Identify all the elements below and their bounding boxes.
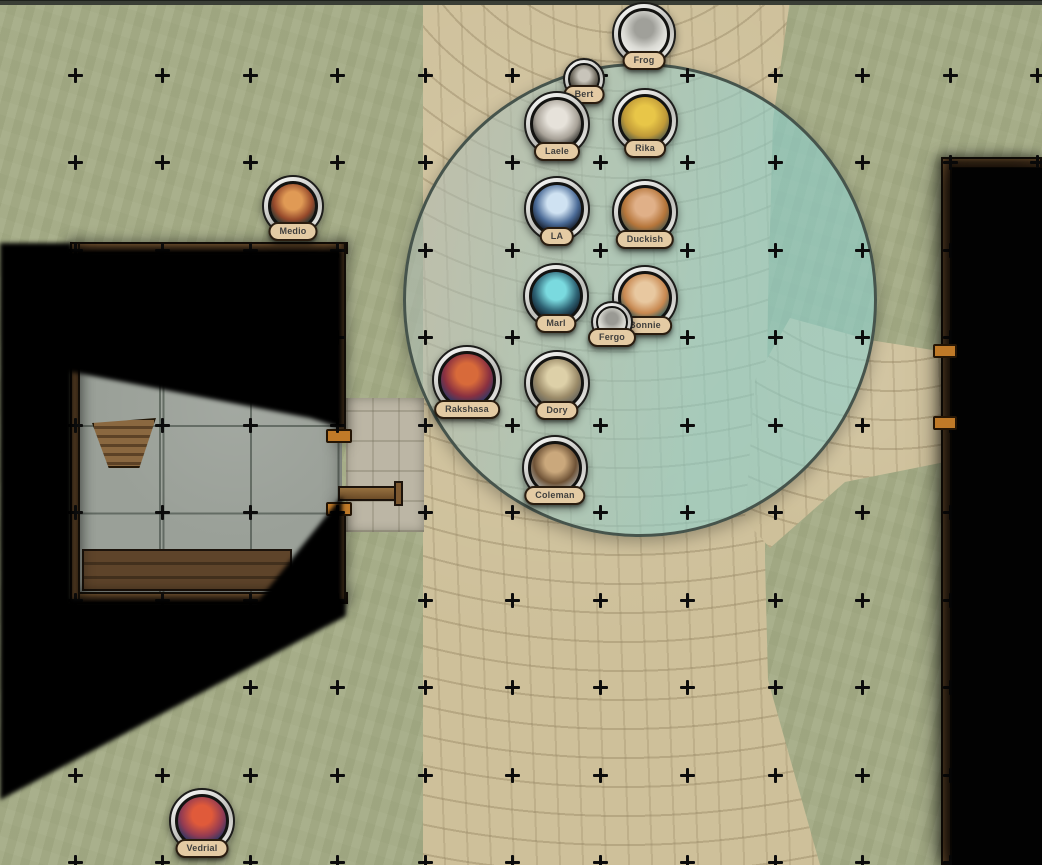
token-label: Marl xyxy=(535,314,576,333)
token-vedrial[interactable]: Vedrial xyxy=(169,788,235,854)
token-rakshasa[interactable]: Rakshasa xyxy=(432,345,502,415)
token-la[interactable]: LA xyxy=(524,176,590,242)
fog-of-war-interior-top xyxy=(72,250,342,430)
token-label: Rika xyxy=(624,139,666,158)
fog-of-war-below-building xyxy=(0,600,346,805)
token-label: Dory xyxy=(535,401,578,420)
token-label: Coleman xyxy=(524,486,585,505)
token-medio[interactable]: Medio xyxy=(262,175,324,237)
token-marl[interactable]: Marl xyxy=(523,263,589,329)
token-laele[interactable]: Laele xyxy=(524,91,590,157)
token-label: LA xyxy=(540,227,574,246)
token-coleman[interactable]: Coleman xyxy=(522,435,588,501)
top-edge-bar xyxy=(0,0,1042,5)
token-duckish[interactable]: Duckish xyxy=(612,179,678,245)
token-label: Duckish xyxy=(616,230,674,249)
token-rika[interactable]: Rika xyxy=(612,88,678,154)
token-label: Rakshasa xyxy=(434,400,500,419)
token-frog[interactable]: Frog xyxy=(612,2,676,66)
token-fergo[interactable]: Fergo xyxy=(591,301,633,343)
fog-of-war-left xyxy=(0,243,72,610)
token-label: Frog xyxy=(623,51,666,70)
fog-of-war-interior-corner xyxy=(255,496,342,605)
token-label: Laele xyxy=(534,142,580,161)
token-label: Fergo xyxy=(588,328,636,347)
token-label: Medio xyxy=(269,222,318,241)
fog-of-war-layer xyxy=(0,0,1042,865)
battle-map-canvas[interactable]: BertFrogLaeleRikaLADuckishMarlBonnieFerg… xyxy=(0,0,1042,865)
token-dory[interactable]: Dory xyxy=(524,350,590,416)
token-label: Vedrial xyxy=(176,839,229,858)
